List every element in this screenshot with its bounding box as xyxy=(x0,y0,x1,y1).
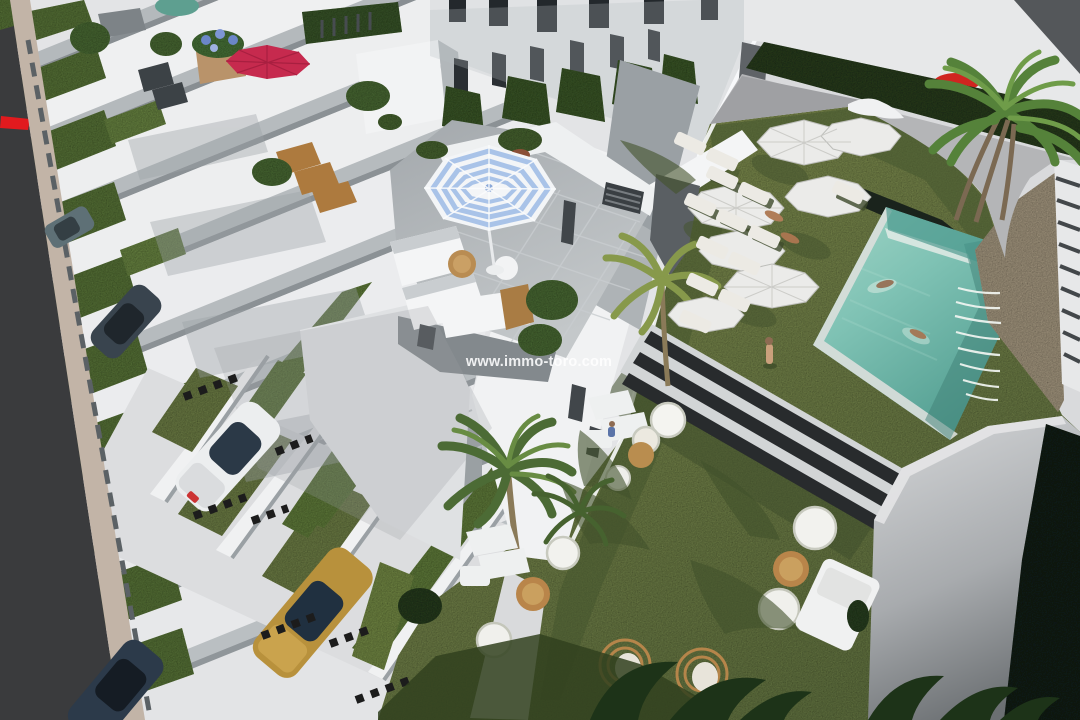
svg-text:www.immo-toro.com: www.immo-toro.com xyxy=(465,354,612,370)
